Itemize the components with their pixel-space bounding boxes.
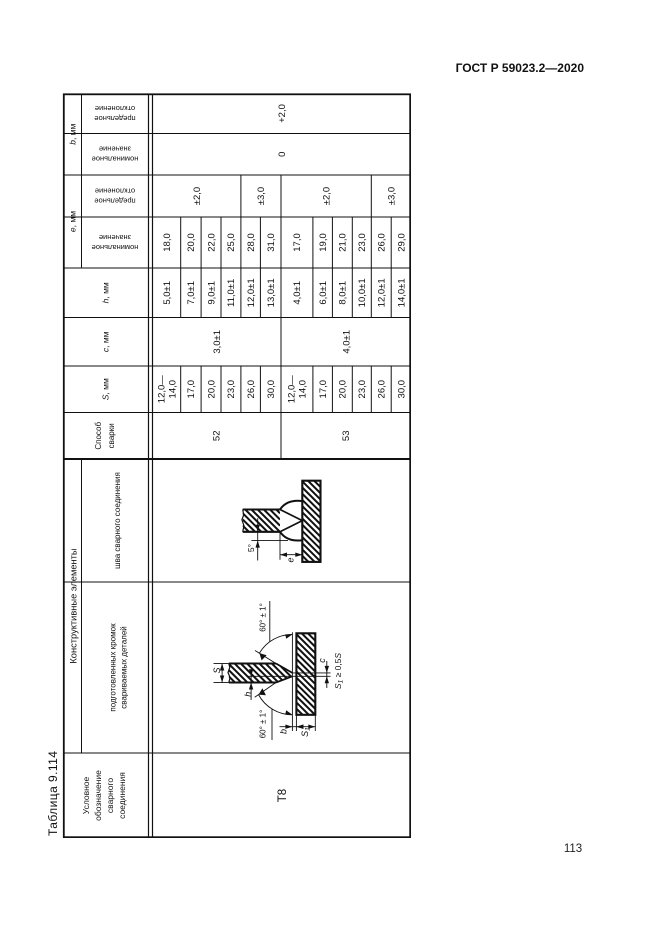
svg-text:23,0: 23,0 — [357, 233, 368, 252]
svg-text:S, мм: S, мм — [100, 378, 110, 400]
svg-text:соединения: соединения — [117, 772, 127, 819]
svg-text:предельное: предельное — [94, 196, 135, 205]
svg-text:26,0: 26,0 — [376, 233, 387, 252]
svg-text:5°: 5° — [246, 544, 256, 552]
svg-text:номинальное: номинальное — [91, 155, 138, 164]
svg-text:20,0: 20,0 — [186, 233, 197, 252]
svg-text:Таблица 9.114: Таблица 9.114 — [46, 751, 60, 836]
svg-text:предельное: предельное — [94, 114, 135, 123]
svg-text:значение: значение — [98, 145, 130, 154]
svg-text:12,0±1: 12,0±1 — [376, 278, 387, 307]
svg-text:23,0: 23,0 — [357, 380, 368, 399]
svg-text:сварки: сварки — [106, 423, 115, 448]
svg-text:9,0±1: 9,0±1 — [206, 281, 217, 305]
svg-text:11,0±1: 11,0±1 — [226, 279, 237, 307]
svg-text:±2,0: ±2,0 — [321, 187, 332, 205]
svg-text:21,0: 21,0 — [337, 233, 348, 252]
svg-text:22,0: 22,0 — [206, 233, 217, 252]
svg-text:17,0: 17,0 — [292, 233, 303, 252]
svg-text:4,0±1: 4,0±1 — [341, 330, 352, 354]
svg-text:S: S — [212, 667, 222, 673]
svg-text:8,0±1: 8,0±1 — [337, 281, 348, 305]
svg-text:20,0: 20,0 — [337, 380, 348, 399]
svg-text:26,0: 26,0 — [376, 380, 387, 399]
svg-text:номинальное: номинальное — [91, 243, 138, 252]
svg-text:е: е — [285, 557, 295, 562]
svg-text:14,0: 14,0 — [297, 380, 308, 399]
svg-text:30,0: 30,0 — [266, 380, 277, 399]
svg-text:±3,0: ±3,0 — [256, 187, 267, 205]
svg-text:0: 0 — [277, 152, 288, 157]
svg-text:b: b — [278, 729, 288, 734]
svg-text:10,0±1: 10,0±1 — [357, 278, 368, 307]
svg-text:12,0—: 12,0— — [156, 375, 167, 403]
svg-text:53: 53 — [340, 431, 351, 442]
svg-text:±3,0: ±3,0 — [386, 187, 397, 205]
svg-text:Конструктивные элементы: Конструктивные элементы — [68, 548, 78, 664]
svg-text:52: 52 — [211, 431, 222, 442]
svg-text:отклонение: отклонение — [94, 104, 134, 113]
svg-text:13,0±1: 13,0±1 — [266, 278, 277, 307]
svg-text:+2,0: +2,0 — [277, 104, 288, 123]
svg-text:60° ± 1°: 60° ± 1° — [258, 710, 267, 739]
svg-text:обозначение: обозначение — [93, 770, 103, 821]
svg-text:Способ: Способ — [93, 422, 102, 450]
svg-text:S1 ≥ 0,5S: S1 ≥ 0,5S — [333, 653, 345, 690]
svg-text:30,0: 30,0 — [396, 380, 407, 399]
svg-text:с: с — [316, 658, 326, 663]
svg-text:свариваемых деталей: свариваемых деталей — [119, 626, 128, 709]
svg-text:17,0: 17,0 — [317, 380, 328, 399]
svg-text:17,0: 17,0 — [186, 380, 197, 399]
svg-text:12,0±1: 12,0±1 — [246, 278, 257, 307]
svg-text:отклонение: отклонение — [94, 186, 134, 195]
svg-text:h, мм: h, мм — [100, 282, 110, 303]
svg-text:шва сварного соединения: шва сварного соединения — [113, 472, 122, 569]
svg-text:31,0: 31,0 — [266, 233, 277, 252]
svg-text:18,0: 18,0 — [161, 233, 172, 252]
svg-text:сварного: сварного — [105, 778, 115, 813]
svg-text:6,0±1: 6,0±1 — [317, 281, 328, 305]
svg-text:4,0±1: 4,0±1 — [292, 281, 303, 305]
svg-text:3,0±1: 3,0±1 — [212, 330, 223, 354]
svg-text:Условное: Условное — [81, 776, 91, 814]
svg-text:28,0: 28,0 — [246, 233, 257, 252]
svg-text:с, мм: с, мм — [100, 331, 110, 352]
svg-text:29,0: 29,0 — [396, 233, 407, 252]
svg-text:23,0: 23,0 — [226, 380, 237, 399]
svg-text:±2,0: ±2,0 — [192, 187, 203, 205]
svg-text:7,0±1: 7,0±1 — [186, 281, 197, 305]
svg-text:b, мм: b, мм — [67, 123, 77, 144]
svg-text:20,0: 20,0 — [206, 380, 217, 399]
svg-text:14,0±1: 14,0±1 — [396, 278, 407, 307]
svg-text:25,0: 25,0 — [226, 233, 237, 252]
svg-text:h: h — [243, 692, 253, 697]
svg-text:е, мм: е, мм — [67, 211, 77, 232]
svg-text:19,0: 19,0 — [317, 233, 328, 252]
svg-text:14,0: 14,0 — [167, 380, 178, 399]
svg-text:12,0—: 12,0— — [286, 375, 297, 403]
svg-text:60° ± 1°: 60° ± 1° — [258, 603, 267, 632]
svg-text:26,0: 26,0 — [246, 380, 257, 399]
svg-text:подготовленных кромок: подготовленных кромок — [108, 623, 117, 712]
svg-text:значение: значение — [98, 233, 130, 242]
svg-text:5,0±1: 5,0±1 — [161, 281, 172, 305]
svg-text:Т8: Т8 — [276, 789, 288, 802]
